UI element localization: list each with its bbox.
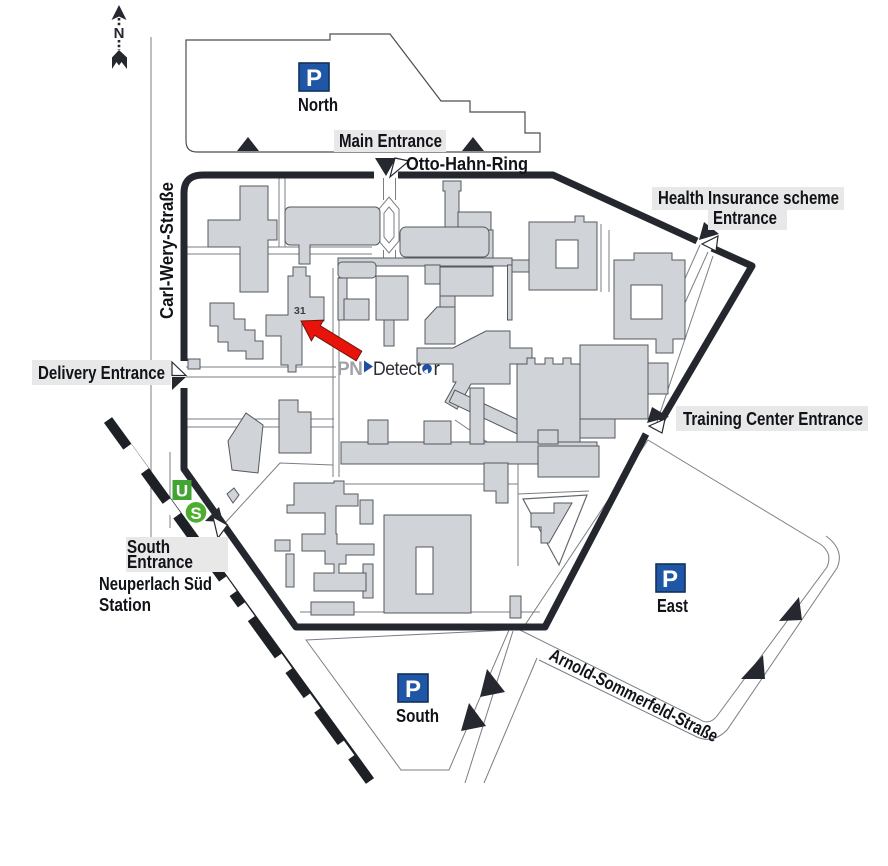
svg-text:Main Entrance: Main Entrance (339, 131, 442, 151)
svg-text:Detect: Detect (373, 359, 422, 380)
svg-text:N: N (114, 25, 125, 42)
svg-text:P: P (306, 65, 322, 92)
svg-text:P: P (662, 566, 678, 593)
svg-text:Delivery Entrance: Delivery Entrance (38, 363, 165, 383)
svg-text:S: S (190, 504, 201, 523)
svg-text:Entrance: Entrance (713, 208, 777, 228)
svg-text:Neuperlach Süd: Neuperlach Süd (99, 574, 212, 594)
svg-text:P: P (405, 676, 421, 703)
svg-text:North: North (298, 95, 338, 115)
svg-text:Otto-Hahn-Ring: Otto-Hahn-Ring (406, 154, 528, 174)
svg-text:Entrance: Entrance (127, 552, 193, 572)
svg-text:PN: PN (337, 359, 362, 380)
svg-text:r: r (434, 359, 441, 380)
svg-text:Health Insurance scheme: Health Insurance scheme (658, 188, 839, 208)
svg-text:East: East (657, 596, 688, 616)
svg-text:Station: Station (99, 595, 151, 615)
svg-text:31: 31 (294, 305, 306, 317)
svg-text:Carl-Wery-Straße: Carl-Wery-Straße (157, 182, 177, 319)
svg-text:Training Center Entrance: Training Center Entrance (683, 409, 863, 429)
svg-text:South: South (396, 706, 439, 726)
svg-text:U: U (176, 482, 188, 501)
